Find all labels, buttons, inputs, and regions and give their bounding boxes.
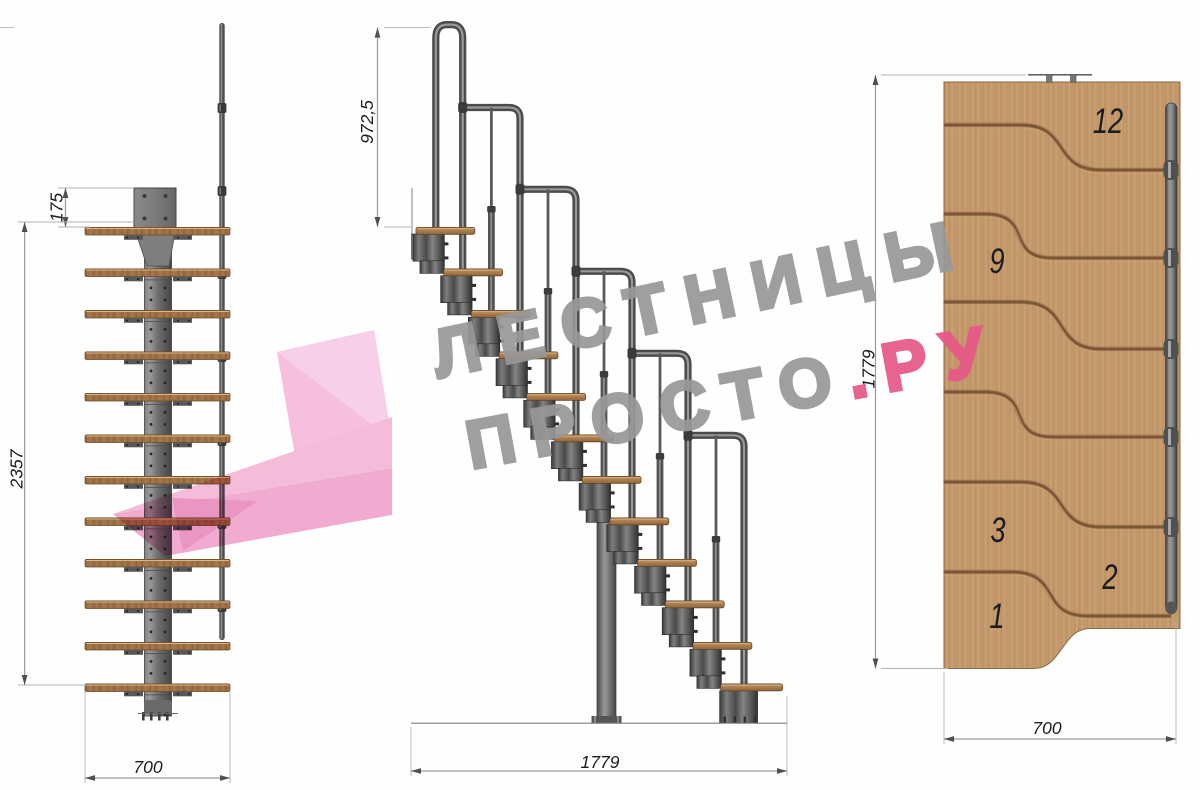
svg-text:2: 2 bbox=[1102, 558, 1118, 597]
svg-text:3: 3 bbox=[990, 511, 1006, 550]
svg-text:1: 1 bbox=[989, 597, 1004, 636]
svg-text:12: 12 bbox=[1093, 102, 1123, 141]
svg-text:175: 175 bbox=[47, 193, 67, 222]
svg-text:972,5: 972,5 bbox=[357, 100, 377, 144]
svg-text:2357: 2357 bbox=[7, 448, 27, 489]
svg-text:9: 9 bbox=[989, 242, 1004, 281]
svg-text:1779: 1779 bbox=[581, 752, 620, 772]
svg-text:700: 700 bbox=[133, 757, 162, 777]
svg-text:700: 700 bbox=[1032, 718, 1061, 738]
